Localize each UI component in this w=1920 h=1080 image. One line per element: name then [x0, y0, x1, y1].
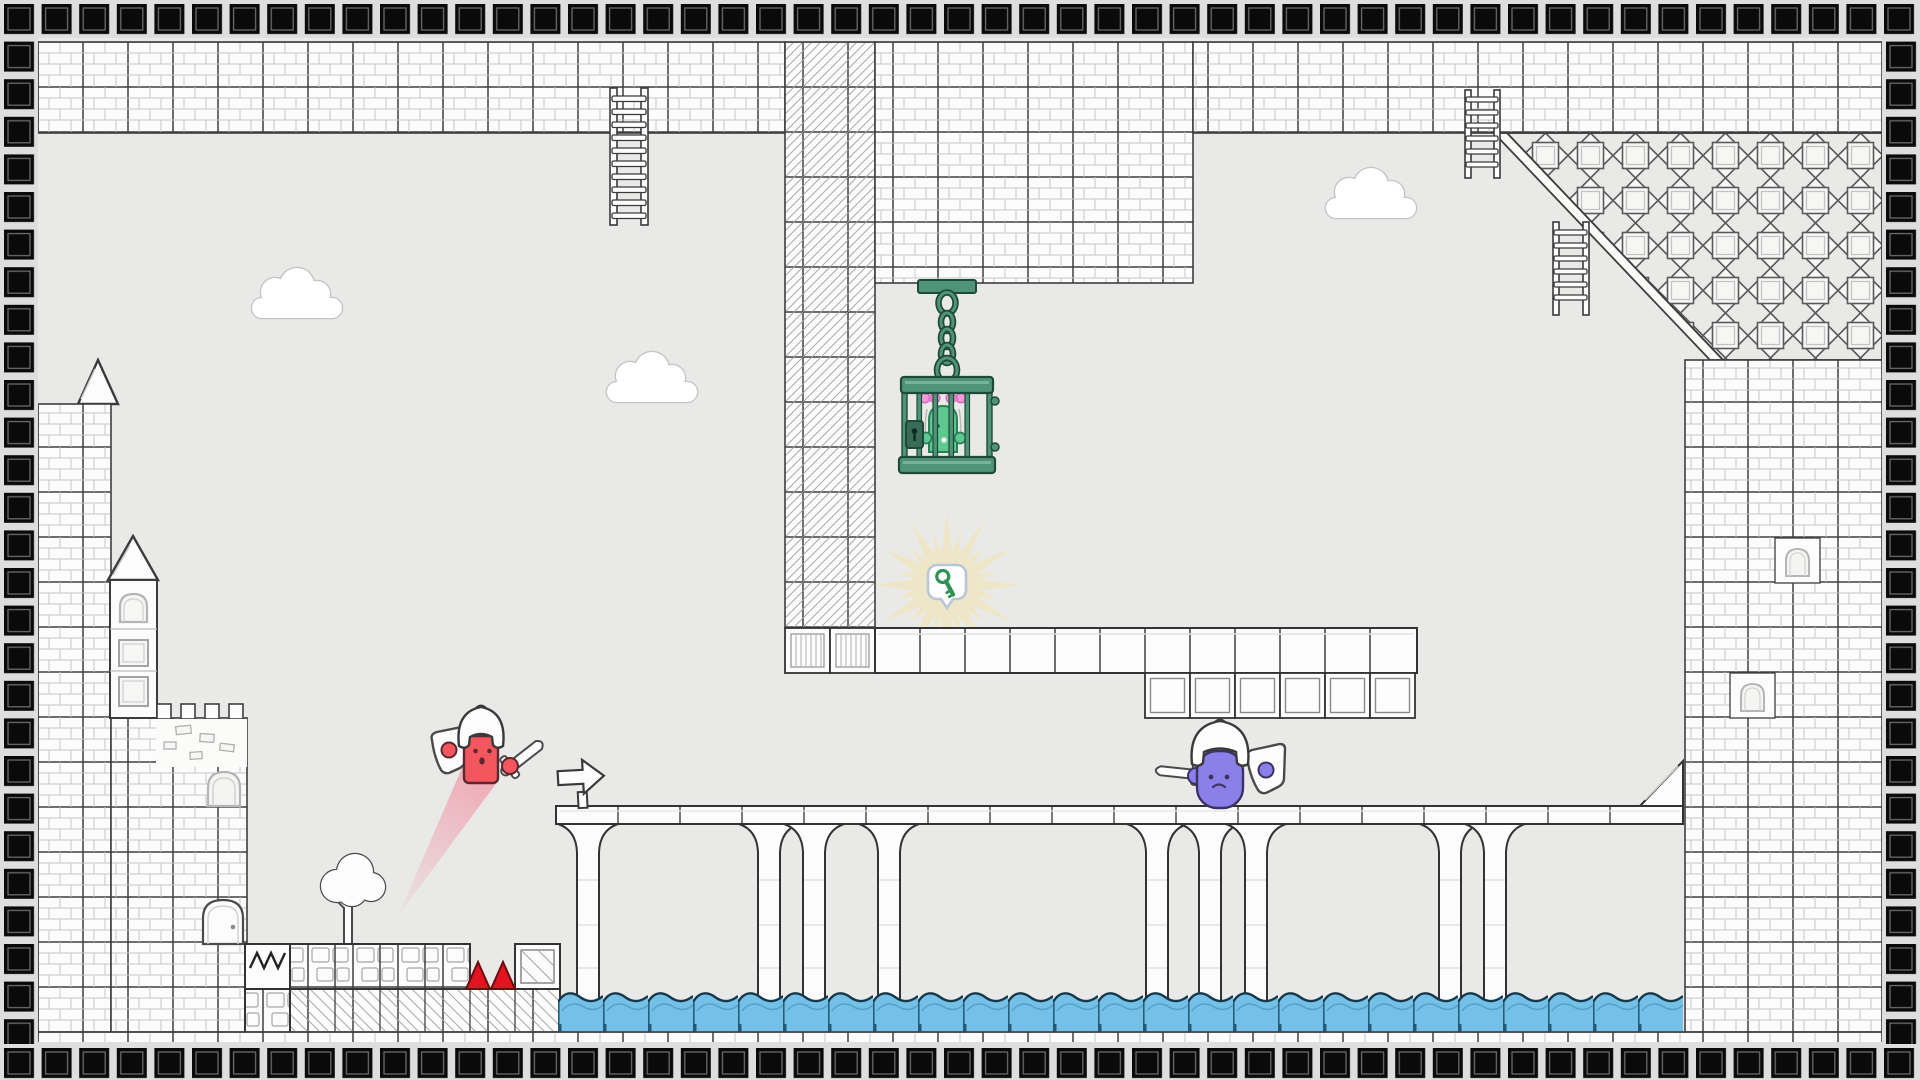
water-pool	[558, 988, 1683, 1033]
grille-tile	[785, 628, 830, 673]
red-knight-hand	[502, 758, 518, 774]
cage-bar	[949, 390, 954, 460]
right-wall	[1685, 360, 1882, 1044]
bridge-deck	[556, 806, 1683, 824]
cage-bar	[965, 390, 970, 460]
creature-arm	[955, 433, 966, 444]
framed-tile-row	[1145, 673, 1415, 718]
ceiling-block-center	[875, 42, 1193, 283]
keyhole-icon	[912, 428, 918, 434]
cage-bar	[933, 390, 938, 460]
castle-door[interactable]	[203, 900, 243, 944]
game-viewport	[0, 0, 1920, 1080]
ceiling-wall-right	[1193, 42, 1882, 133]
grille-tile	[830, 628, 875, 673]
door-knob	[231, 925, 236, 930]
left-wall	[38, 404, 111, 1044]
ceiling-wall-left	[38, 42, 785, 133]
red-knight-mouth	[479, 757, 484, 764]
hatched-column	[785, 42, 875, 628]
cage-lock	[906, 421, 923, 448]
